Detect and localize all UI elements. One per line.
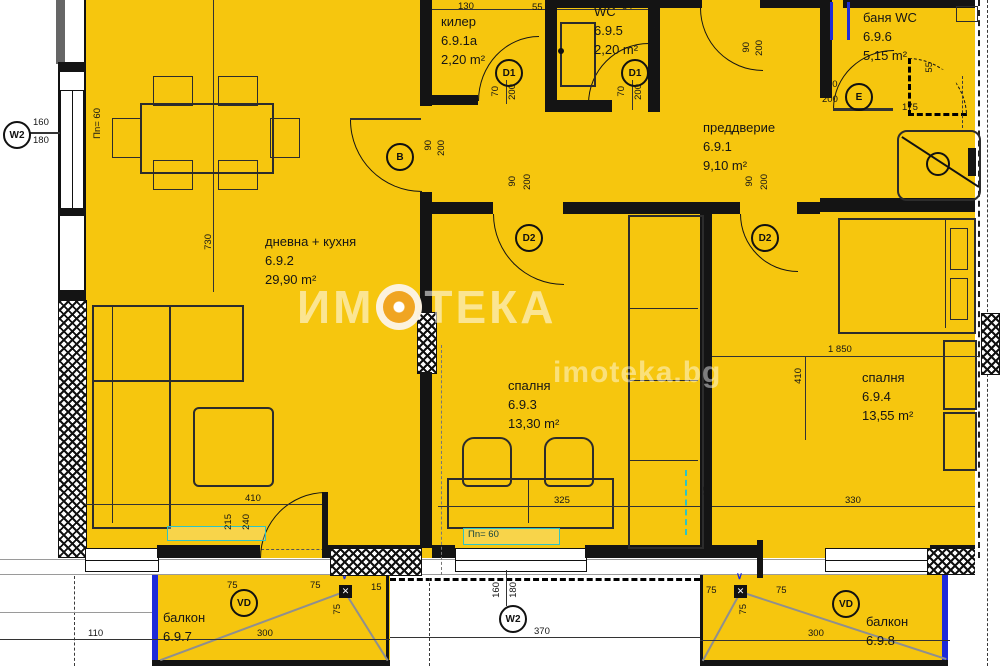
room-name: дневна + кухня <box>265 232 356 251</box>
bath-blue-partition <box>830 2 850 40</box>
room-area: 9,10 m² <box>703 156 775 175</box>
balcony-2-side-wall <box>700 575 703 666</box>
watermark-site: imoteka.bg <box>553 356 721 390</box>
left-wall-hatch <box>58 300 87 558</box>
left-window <box>60 90 84 214</box>
door-marker-d1: D1 <box>495 59 523 87</box>
parapet-height-label: Пn= 60 <box>93 108 103 139</box>
balcony-2-rail <box>700 660 948 666</box>
chair <box>462 437 512 487</box>
balcony-door-marker-vd: VD <box>230 589 258 617</box>
wall <box>545 0 557 110</box>
dim-175: 175 <box>902 103 918 113</box>
dim-line-1850 <box>712 356 980 357</box>
dim-200: 200 <box>508 84 518 100</box>
dim-240: 240 <box>242 514 252 530</box>
chair <box>153 76 193 106</box>
watermark-logo: ИМ ТЕКА <box>297 280 556 334</box>
dim-200: 200 <box>634 84 644 100</box>
floor-plan: ✕ ✕ ∨ ∨ <box>0 0 1000 666</box>
dim-110: 110 <box>86 629 105 639</box>
dim-180: 180 <box>33 136 49 146</box>
chair <box>218 76 258 106</box>
room-name: баня WC <box>863 8 917 27</box>
dim-90: 90 <box>745 176 755 187</box>
room-label-killer: килер 6.9.1а 2,20 m² <box>441 12 485 69</box>
bedroom2-window <box>825 548 932 572</box>
shower-drain <box>926 152 950 176</box>
room-name: балкон <box>866 612 908 631</box>
door-marker-d2: D2 <box>515 224 543 252</box>
dim-410: 410 <box>243 494 263 504</box>
wall <box>420 0 432 106</box>
room-name: преддверие <box>703 118 775 137</box>
dim-line-410v <box>805 356 806 440</box>
room-label-hall: преддверие 6.9.1 9,10 m² <box>703 118 775 175</box>
room-number: 6.9.2 <box>265 251 356 270</box>
chair <box>218 160 258 190</box>
dim-70: 70 <box>617 86 627 97</box>
wall <box>432 95 478 105</box>
dim-75: 75 <box>310 581 321 591</box>
dim-200: 200 <box>437 140 447 156</box>
room-name: спалня <box>508 376 559 395</box>
dim-200: 200 <box>822 95 838 105</box>
room-area: 5,15 m² <box>863 46 917 65</box>
leader-line <box>506 570 507 606</box>
dim-180: 180 <box>509 582 519 598</box>
dim-160: 160 <box>492 582 502 598</box>
dim-330: 330 <box>843 496 863 506</box>
watermark-circle-icon <box>376 284 422 330</box>
wall <box>660 0 702 8</box>
parapet-height-label: Пn= 60 <box>468 530 499 540</box>
room-label-bedroom1: спалня 6.9.3 13,30 m² <box>508 376 559 433</box>
wall <box>432 202 493 214</box>
wall <box>700 545 763 558</box>
room-number: 6.9.6 <box>863 27 917 46</box>
chair <box>112 118 142 158</box>
dim-300: 300 <box>806 629 826 639</box>
shower-handle <box>968 148 976 176</box>
balcony-2-blue-mark: ∨ <box>736 572 743 582</box>
dim-75: 75 <box>227 581 238 591</box>
leader-line <box>28 132 60 134</box>
coffee-table <box>193 407 274 487</box>
dim-200: 200 <box>760 174 770 190</box>
wall <box>58 290 86 300</box>
pillow <box>950 278 968 320</box>
wall <box>58 208 86 216</box>
wall <box>157 545 260 558</box>
bed-headboard-line <box>945 220 946 328</box>
window-marker-w2: W2 <box>3 121 31 149</box>
balcony-2-edge <box>942 575 948 666</box>
room-number: 6.9.8 <box>866 631 908 650</box>
dim-90: 90 <box>508 176 518 187</box>
sofa-back-line <box>112 307 113 523</box>
wall <box>420 372 432 548</box>
dim-370: 370 <box>532 627 552 637</box>
door-marker-e: E <box>845 83 873 111</box>
dim-15: 15 <box>371 583 382 593</box>
room-area: 2,20 m² <box>441 50 485 69</box>
room-number: 6.9.5 <box>594 21 638 40</box>
wall <box>563 202 740 214</box>
dim-90: 90 <box>424 140 434 151</box>
dim-325: 325 <box>552 496 572 506</box>
room-label-balcony1: балкон 6.9.7 <box>163 608 205 646</box>
living-window <box>85 548 159 572</box>
sofa-body <box>92 305 171 529</box>
wardrobe-shelf <box>630 460 698 461</box>
dim-410: 410 <box>794 368 804 384</box>
chair <box>153 160 193 190</box>
exterior-face-line <box>978 0 980 558</box>
nightstand <box>943 340 977 410</box>
dim-75: 75 <box>776 586 787 596</box>
extension-line <box>0 612 152 613</box>
dim-line-325 <box>438 506 700 507</box>
door-marker-d2: D2 <box>751 224 779 252</box>
dim-75: 75 <box>706 586 717 596</box>
dim-130: 130 <box>458 2 474 12</box>
axis-dash-line <box>74 576 75 666</box>
dim-75: 75 <box>739 604 749 615</box>
balcony-1-side-wall <box>386 575 389 666</box>
balcony-1-edge <box>152 575 158 666</box>
dim-300: 300 <box>255 629 275 639</box>
room-name: балкон <box>163 608 205 627</box>
axis-dash-line <box>441 345 442 575</box>
dim-215: 215 <box>224 514 234 530</box>
wall-hatch <box>330 548 422 576</box>
room-name: килер <box>441 12 485 31</box>
dim-200: 200 <box>755 40 765 56</box>
sink <box>956 6 978 22</box>
room-area: 13,55 m² <box>862 406 913 425</box>
watermark-text-left: ИМ <box>297 280 374 334</box>
chair <box>270 118 300 158</box>
pillow <box>950 228 968 270</box>
room-label-bath: баня WC 6.9.6 5,15 m² <box>863 8 917 65</box>
dim-70: 70 <box>827 80 838 90</box>
room-number: 6.9.4 <box>862 387 913 406</box>
dim-200: 200 <box>523 174 533 190</box>
dim-170: 170 <box>648 14 658 30</box>
bath-dash-line <box>962 76 963 128</box>
dim-55: 55 <box>925 62 935 73</box>
room-number: 6.9.3 <box>508 395 559 414</box>
balcony-door-marker-vd: VD <box>832 590 860 618</box>
heavy-dash-line <box>390 578 700 581</box>
wall <box>58 62 86 72</box>
window-marker-w2: W2 <box>499 605 527 633</box>
room-name: спалня <box>862 368 913 387</box>
dresser <box>943 412 977 471</box>
dim-90: 90 <box>742 42 752 53</box>
dim-line-410 <box>85 504 322 505</box>
dim-15: 15 <box>703 486 713 497</box>
living-door-leaf <box>350 118 421 120</box>
axis-dash-line <box>429 578 430 666</box>
dim-70: 70 <box>491 86 501 97</box>
room-area: 13,30 m² <box>508 414 559 433</box>
room-label-bedroom2: спалня 6.9.4 13,55 m² <box>862 368 913 425</box>
left-wall-dark-segment <box>56 0 65 64</box>
dim-160: 160 <box>33 118 49 128</box>
room-number: 6.9.1а <box>441 31 485 50</box>
watermark-text-right: ТЕКА <box>424 280 556 334</box>
right-wall-hatch <box>981 313 1000 375</box>
wall <box>797 202 820 214</box>
door-marker-b: B <box>386 143 414 171</box>
wall <box>760 0 832 8</box>
wall <box>432 545 455 558</box>
balcony-1-rail <box>152 660 390 666</box>
dim-line-370 <box>390 637 700 638</box>
dim-1850: 1 850 <box>826 345 854 355</box>
room-area: 2,20 m² <box>594 40 638 59</box>
door-marker-d1: D1 <box>621 59 649 87</box>
door-handle <box>558 48 564 54</box>
dim-15: 15 <box>421 486 431 497</box>
dim-line-300 <box>700 640 950 641</box>
bedroom1-window <box>455 548 587 572</box>
chair <box>544 437 594 487</box>
room-number: 6.9.7 <box>163 627 205 646</box>
room-label-balcony2: балкон 6.9.8 <box>866 612 908 650</box>
wardrobe-shelf <box>630 308 698 309</box>
wc-door-leaf <box>560 22 596 87</box>
room-number: 6.9.1 <box>703 137 775 156</box>
dim-line-330 <box>712 506 975 507</box>
balcony-2-pivot-marker: ✕ <box>734 585 747 598</box>
dim-75: 75 <box>333 604 343 615</box>
door-jamb <box>757 540 763 578</box>
dim-84: 84 <box>622 2 633 12</box>
balcony-1-pivot-marker: ✕ <box>339 585 352 598</box>
desk-divider <box>528 480 529 523</box>
dim-55: 55 <box>532 3 543 13</box>
dim-730: 730 <box>204 234 214 250</box>
